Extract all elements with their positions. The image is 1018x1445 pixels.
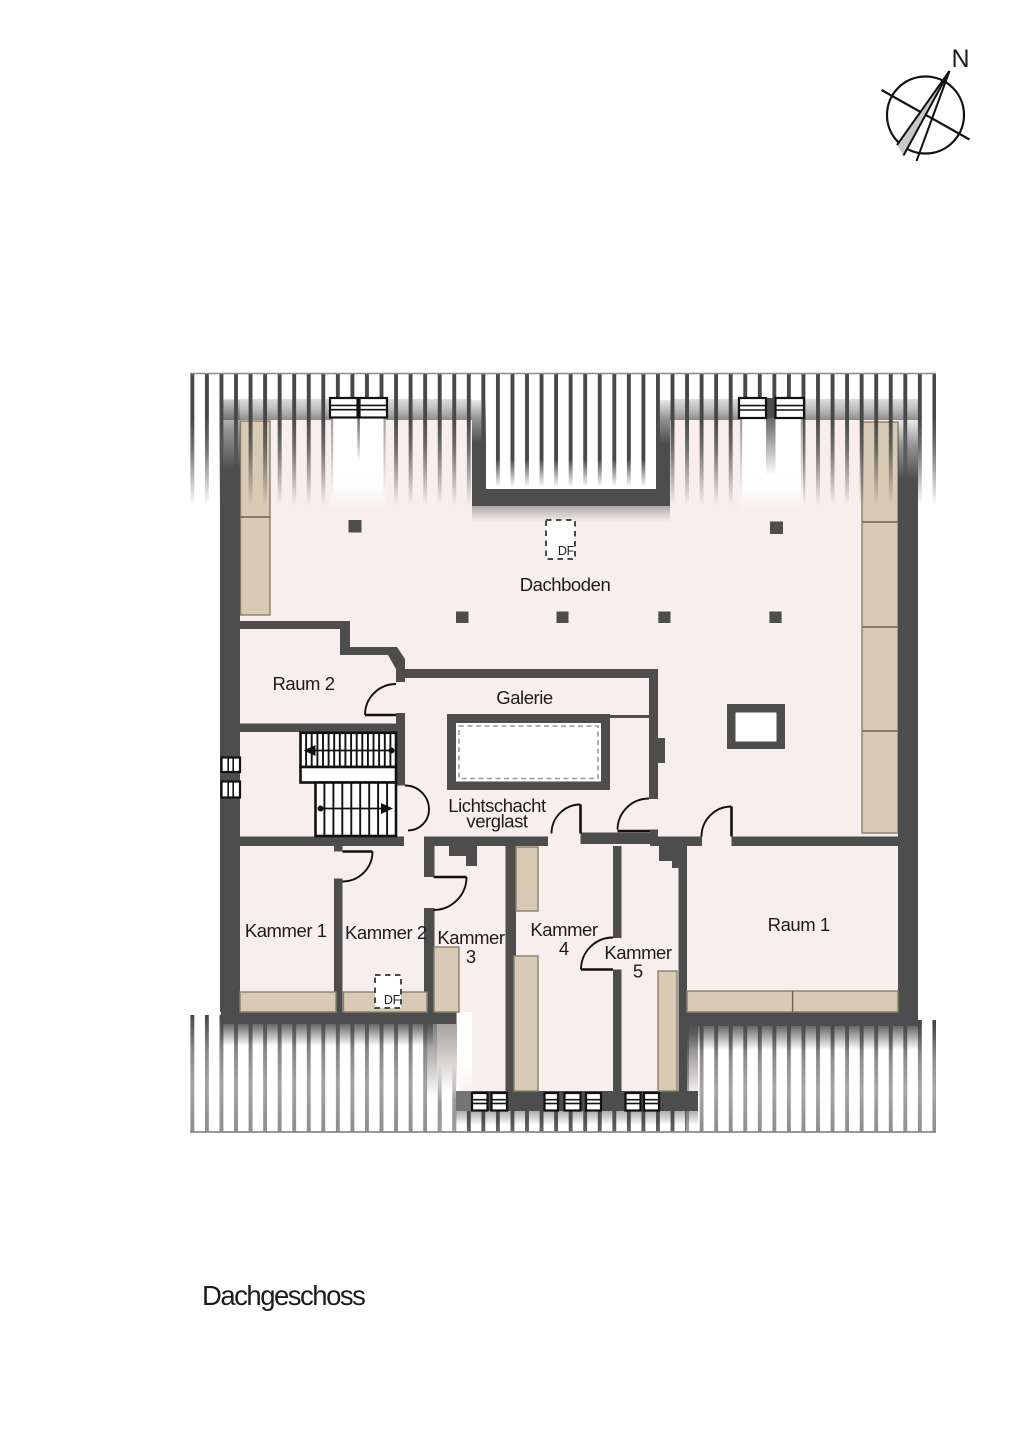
svg-text:4: 4 (559, 938, 569, 959)
svg-text:3: 3 (466, 946, 476, 967)
svg-text:Raum 2: Raum 2 (272, 673, 334, 694)
svg-text:Galerie: Galerie (496, 687, 553, 708)
svg-text:Kammer 2: Kammer 2 (345, 922, 427, 943)
svg-text:DF: DF (558, 544, 575, 558)
svg-text:5: 5 (633, 961, 643, 982)
svg-text:Kammer: Kammer (437, 927, 504, 948)
svg-text:Dachgeschoss: Dachgeschoss (202, 1280, 365, 1311)
svg-text:verglast: verglast (466, 811, 527, 832)
svg-text:N: N (951, 45, 969, 73)
svg-text:Kammer: Kammer (530, 919, 597, 940)
svg-text:Kammer 1: Kammer 1 (245, 920, 327, 941)
svg-text:DF: DF (384, 993, 401, 1007)
svg-text:Dachboden: Dachboden (520, 574, 611, 595)
svg-text:Raum 1: Raum 1 (768, 914, 830, 935)
